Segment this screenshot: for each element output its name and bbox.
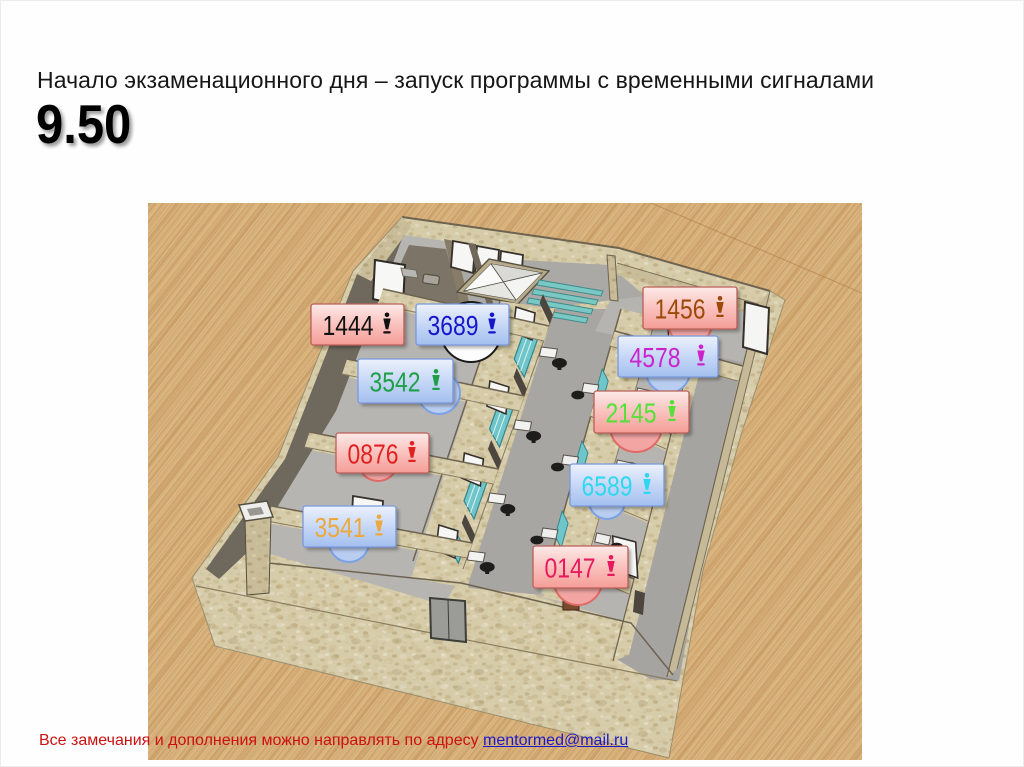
svg-text:3689: 3689	[428, 310, 479, 341]
svg-text:4578: 4578	[630, 342, 681, 373]
svg-text:0876: 0876	[348, 439, 399, 470]
svg-text:3542: 3542	[370, 367, 421, 398]
svg-text:1456: 1456	[655, 294, 706, 325]
svg-text:6589: 6589	[582, 471, 633, 502]
svg-text:2145: 2145	[606, 398, 657, 429]
svg-text:1444: 1444	[323, 310, 374, 341]
svg-text:3541: 3541	[315, 512, 366, 543]
svg-text:0147: 0147	[545, 553, 596, 584]
